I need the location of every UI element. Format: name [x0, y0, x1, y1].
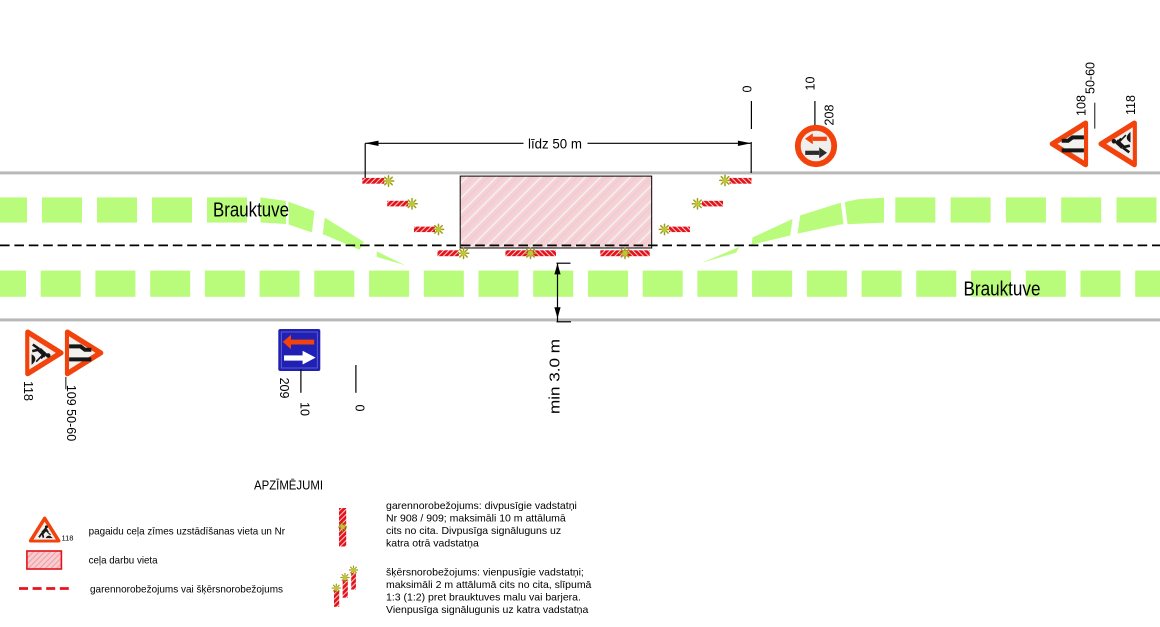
svg-text:maksimāli 2 m attālumā cits no: maksimāli 2 m attālumā cits no cita, slī…: [386, 579, 592, 591]
svg-text:1:3 (1:2) pret brauktuves malu: 1:3 (1:2) pret brauktuves malu vai barje…: [386, 592, 581, 604]
svg-text:118: 118: [1124, 95, 1138, 115]
svg-text:10: 10: [804, 77, 818, 91]
svg-text:līdz 50 m: līdz 50 m: [528, 135, 582, 151]
svg-text:109 50-60: 109 50-60: [64, 385, 78, 441]
svg-text:Nr 908 / 909; maksimāli 10 m a: Nr 908 / 909; maksimāli 10 m attālumā: [386, 513, 566, 525]
svg-text:0: 0: [741, 85, 755, 92]
svg-text:APZĪMĒJUMI: APZĪMĒJUMI: [254, 478, 323, 493]
svg-text:cits no cita. Divpusīga signāl: cits no cita. Divpusīga signāluguns uz: [386, 525, 561, 537]
svg-text:katra otrā vadstatņa: katra otrā vadstatņa: [386, 538, 479, 550]
svg-text:108: 108: [1075, 95, 1089, 116]
svg-text:pagaidu ceļa zīmes uzstādīšana: pagaidu ceļa zīmes uzstādīšanas vieta un…: [89, 526, 286, 538]
svg-text:209: 209: [277, 378, 291, 399]
svg-text:garennorobežojums vai šķērsnor: garennorobežojums vai šķērsnorobežojums: [90, 584, 283, 596]
svg-text:Brauktuve: Brauktuve: [213, 200, 289, 222]
svg-text:10: 10: [298, 402, 312, 416]
svg-text:50-60: 50-60: [1084, 62, 1098, 94]
svg-text:118: 118: [21, 381, 35, 401]
svg-text:garennorobežojums: divpusīgie: garennorobežojums: divpusīgie vadstatņi: [386, 500, 577, 512]
svg-text:ceļa darbu vieta: ceļa darbu vieta: [89, 555, 158, 567]
svg-text:118: 118: [62, 533, 74, 542]
svg-text:0: 0: [353, 405, 367, 412]
svg-text:Vienpusīga signālugunis uz kat: Vienpusīga signālugunis uz katra vadstat…: [386, 604, 589, 616]
svg-text:Brauktuve: Brauktuve: [964, 279, 1041, 301]
svg-text:208: 208: [823, 105, 837, 126]
svg-text:min 3.0 m: min 3.0 m: [547, 339, 564, 414]
svg-text:šķērsnorobežojums: vienpusīgie: šķērsnorobežojums: vienpusīgie vadstatņi…: [386, 567, 584, 579]
